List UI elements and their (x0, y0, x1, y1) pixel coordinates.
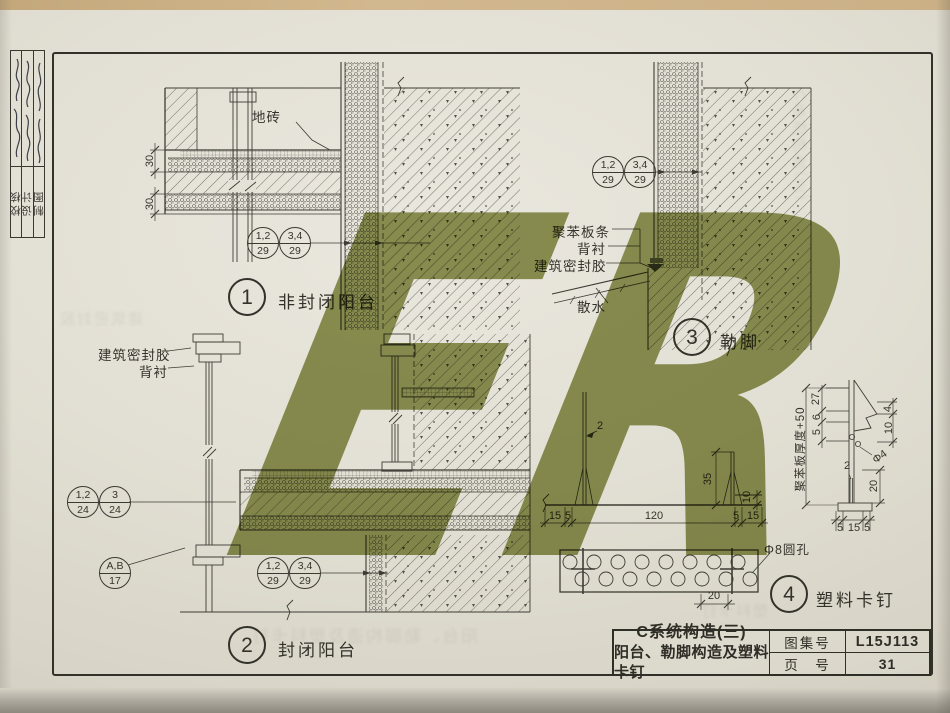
bubble-bottom: 17 (100, 574, 130, 588)
detail-3-title: 勒脚 (720, 328, 760, 353)
detail-number-circle: 2 (228, 626, 266, 664)
hole-label: Φ8圆孔 (764, 539, 810, 558)
detail-ref-bubble: 1,2 24 (67, 486, 99, 518)
dim-35: 35 (702, 467, 714, 491)
detail-number-circle: 3 (673, 318, 711, 356)
detail-number-circle: 4 (770, 575, 808, 613)
detail-1-title: 非封闭阳台 (278, 288, 378, 313)
bubble-bottom: 29 (258, 574, 288, 588)
detail-4-title: 塑料卡钉 (816, 586, 896, 611)
bubble-bottom: 29 (625, 173, 655, 187)
detail-4-drawing (540, 380, 897, 610)
dim-30: 30 (144, 192, 156, 216)
bubble-top: 1,2 (593, 157, 623, 173)
detail-ref-bubble: 3,4 29 (624, 156, 656, 188)
detail-ref-bubble: 1,2 29 (592, 156, 624, 188)
dim-5: 5 (562, 510, 574, 522)
bubble-bottom: 29 (280, 244, 310, 258)
detail-ref-bubble: 1,2 29 (247, 227, 279, 259)
board-thickness-label: 聚苯板厚度+50 (792, 384, 808, 514)
bubble-bottom: 24 (100, 503, 130, 517)
dim-5: 5 (811, 423, 823, 441)
bubble-bottom: 29 (290, 574, 320, 588)
bubble-top: 3,4 (280, 228, 310, 244)
atlas-number-value: L15J113 (846, 631, 929, 653)
right-shadow (936, 0, 950, 713)
sheet-title: 阳台、勒脚构造及塑料卡钉 (614, 643, 769, 683)
sealant-label: 建筑密封胶 (534, 255, 604, 275)
dim-20: 20 (703, 590, 725, 602)
bubble-top: 3,4 (625, 157, 655, 173)
detail-2-drawing (128, 334, 530, 620)
page-number-value: 31 (846, 653, 929, 674)
dim-5: 5 (861, 522, 873, 534)
series-title: C系统构造(三) (636, 623, 746, 643)
backing-label: 背衬 (138, 361, 168, 381)
dim-20: 20 (868, 475, 880, 497)
bubble-bottom: 29 (248, 244, 278, 258)
detail-ref-bubble: 3,4 29 (289, 557, 321, 589)
dim-15: 15 (743, 510, 763, 522)
dim-4: 4 (882, 401, 894, 417)
bubble-top: 1,2 (68, 487, 98, 503)
detail-number: 3 (686, 326, 698, 349)
atlas-number-label: 图集号 (770, 631, 846, 653)
bubble-bottom: 24 (68, 503, 98, 517)
dim-10: 10 (883, 418, 895, 438)
dim-10: 10 (741, 487, 753, 507)
apron-label: 散水 (576, 296, 606, 316)
detail-ref-bubble: 1,2 29 (257, 557, 289, 589)
photographed-atlas-page: 阳台、勒脚构造及塑料卡钉 建筑密封胶 塑料卡钉 C系统构造(三) 校核 设计 制… (0, 0, 950, 713)
bubble-top: 3 (100, 487, 130, 503)
detail-ref-bubble: 3 24 (99, 486, 131, 518)
dim-5: 5 (730, 510, 742, 522)
detail-number: 4 (783, 583, 795, 606)
bubble-top: 1,2 (248, 228, 278, 244)
title-block: C系统构造(三) 阳台、勒脚构造及塑料卡钉 图集号 L15J113 页 号 31 (612, 629, 931, 676)
bubble-top: 3,4 (290, 558, 320, 574)
page-number-label: 页 号 (770, 653, 846, 674)
detail-ref-bubble: A,B 17 (99, 557, 131, 589)
bottom-shadow (0, 688, 950, 713)
detail-number: 2 (241, 634, 253, 657)
dim-2: 2 (594, 420, 606, 432)
bubble-bottom: 29 (593, 173, 623, 187)
detail-ref-bubble: 3,4 29 (279, 227, 311, 259)
dim-30: 30 (144, 149, 156, 173)
tile-label: 地砖 (252, 106, 281, 126)
bubble-top: 1,2 (258, 558, 288, 574)
detail-number-circle: 1 (228, 278, 266, 316)
detail-2-title: 封闭阳台 (278, 636, 358, 661)
bubble-top: A,B (100, 558, 130, 574)
dim-120: 120 (640, 510, 668, 522)
detail-number: 1 (241, 286, 253, 309)
dim-2: 2 (841, 460, 853, 472)
title-block-title: C系统构造(三) 阳台、勒脚构造及塑料卡钉 (614, 631, 770, 674)
